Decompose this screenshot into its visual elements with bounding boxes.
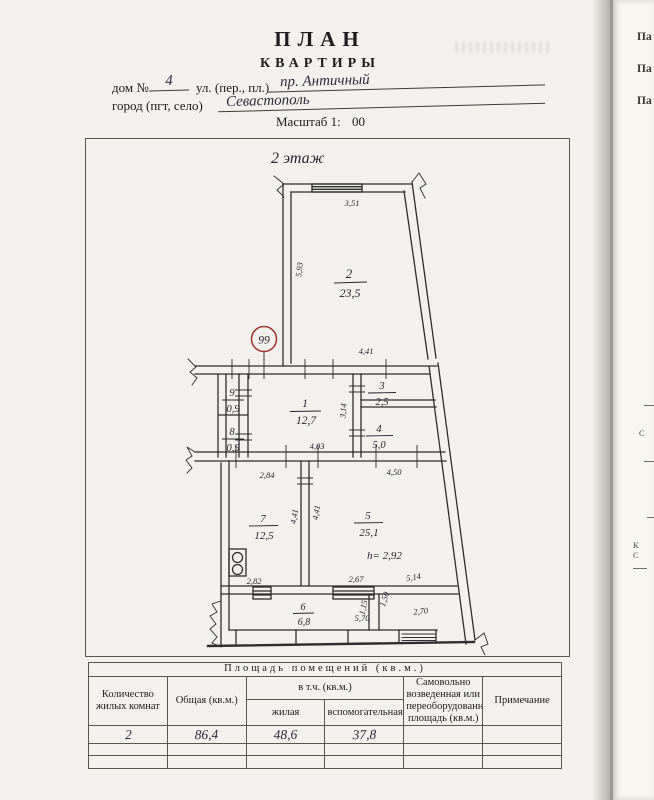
value-aux-area: 37,8 xyxy=(325,725,404,745)
wall-break xyxy=(210,601,221,647)
dimension-labels: 3,51 5,93 4,41 4,03 3,14 2,84 4,50 4,41 … xyxy=(247,198,430,623)
col-header-total: Общая (кв.м.) xyxy=(167,677,246,726)
room-number: 3 xyxy=(378,381,384,392)
room-number: 1 xyxy=(302,398,308,410)
dim-kitchen-bottom: 2,82 xyxy=(247,576,263,586)
adjacent-text-fragment: К xyxy=(633,540,639,550)
col-header-unauthorized: Самовольно возведенная или переоборудова… xyxy=(404,677,483,726)
room-area: 12,5 xyxy=(254,530,274,542)
adjacent-line xyxy=(633,568,647,569)
window-symbol xyxy=(312,184,362,192)
room-area: 2,5 xyxy=(375,397,388,408)
apartment-number-badge: 99 xyxy=(252,327,277,367)
room-number: 7 xyxy=(260,513,266,525)
room-area: 12,7 xyxy=(296,415,317,427)
adjacent-text-fragment: С xyxy=(633,550,639,560)
city-label: город (пгт, село) xyxy=(112,98,203,114)
railing-hatch xyxy=(402,634,435,641)
ceiling-height-note: h= 2,92 xyxy=(367,550,402,562)
wall-break xyxy=(186,447,195,473)
page-edge-shadow xyxy=(592,0,612,800)
dim-slant: 5,14 xyxy=(405,571,422,584)
adjacent-line xyxy=(644,461,654,462)
adjacent-text-fragment: С xyxy=(639,428,645,438)
dim-kitchen-right: 4,41 xyxy=(288,508,300,524)
room-area: 0,9 xyxy=(226,404,240,415)
dim-hall-right: 3,14 xyxy=(337,402,348,419)
col-header-aux: вспомогательная xyxy=(325,700,404,726)
room-number: 5 xyxy=(365,510,371,522)
value-room-count: 2 xyxy=(88,725,167,745)
dim-room2-top: 3,51 xyxy=(344,198,360,208)
table-title: Площадь помещений (кв.м.) xyxy=(89,663,562,677)
room-number: 6 xyxy=(301,602,306,613)
col-header-living: жилая xyxy=(246,700,325,726)
wall-break xyxy=(475,633,488,655)
dim-bottom-right: 2,70 xyxy=(413,605,430,617)
adjacent-text-fragment: Па xyxy=(637,31,652,43)
value-unauthorized xyxy=(404,726,483,744)
house-label: дом № xyxy=(112,80,149,96)
adjacent-line xyxy=(644,405,654,406)
room-area: 5,0 xyxy=(372,440,386,451)
room-number: 4 xyxy=(376,424,382,435)
room-area: 6,8 xyxy=(298,617,311,628)
dimension-ticks xyxy=(232,359,417,484)
plan-frame: 99 2 этаж 2 23,5 9 0,9 8 0,9 1 12,7 3 2,… xyxy=(85,138,570,657)
room-number: 8 xyxy=(229,427,235,438)
adjacent-line xyxy=(647,517,654,518)
dim-passage-height: 1,50 xyxy=(377,590,391,608)
value-living-area: 48,6 xyxy=(246,725,325,745)
adjacent-text-fragment: Па xyxy=(637,95,652,107)
room-area: 25,1 xyxy=(359,527,378,539)
value-total-area: 86,4 xyxy=(167,725,246,745)
room-area: 23,5 xyxy=(340,286,361,300)
floor-label: 2 этаж xyxy=(271,150,325,167)
scale-value: 00 xyxy=(352,114,365,130)
page-title: ПЛАН xyxy=(28,27,612,52)
dim-hall-width: 4,03 xyxy=(310,441,325,451)
room-number: 9 xyxy=(229,388,235,399)
window-symbol xyxy=(253,587,374,599)
stove-icon xyxy=(229,549,246,576)
col-header-note: Примечание xyxy=(483,677,562,726)
adjacent-page: Па Па Па С К С xyxy=(613,0,654,800)
dim-room2-bottom: 4,41 xyxy=(359,346,374,356)
room-area: 0,9 xyxy=(226,443,240,454)
scale-label: Масштаб 1: xyxy=(276,114,341,130)
dim-room5-bottom: 2,67 xyxy=(349,574,365,584)
col-header-incl: в т.ч. (кв.м.) xyxy=(246,677,404,700)
apartment-number: 99 xyxy=(258,335,270,347)
col-header-rooms: Количество жилых комнат xyxy=(89,677,168,726)
room-number: 2 xyxy=(346,266,353,281)
dim-room5-top: 4,50 xyxy=(387,467,403,477)
dim-room5-left: 4,41 xyxy=(310,504,322,520)
house-value: 4 xyxy=(149,72,189,91)
dim-room2-left: 5,93 xyxy=(293,262,305,278)
wall-break xyxy=(188,359,197,385)
floor-plan: 99 2 этаж 2 23,5 9 0,9 8 0,9 1 12,7 3 2,… xyxy=(86,139,568,655)
areas-table: Площадь помещений (кв.м.) Количество жил… xyxy=(88,662,562,769)
value-note xyxy=(483,726,562,744)
adjacent-text-fragment: Па xyxy=(637,63,652,75)
dim-kitchen-top: 2,84 xyxy=(260,470,276,480)
